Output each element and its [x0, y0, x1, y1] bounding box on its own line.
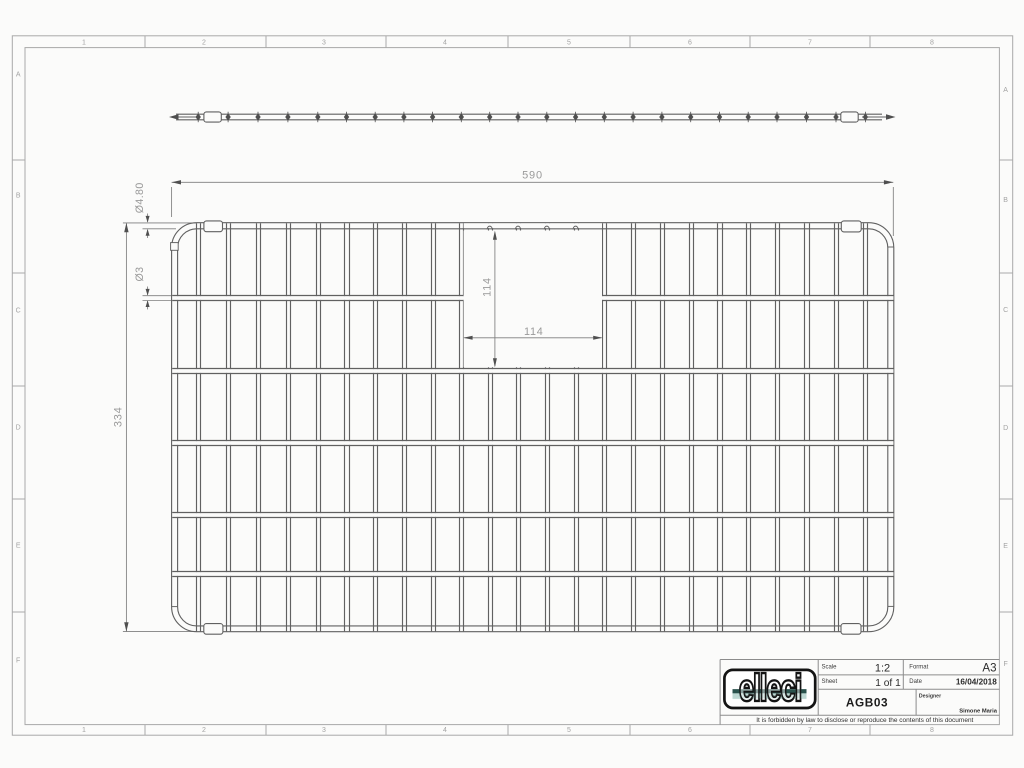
svg-text:114: 114	[481, 277, 493, 297]
svg-text:4: 4	[443, 40, 447, 47]
svg-text:A: A	[16, 72, 21, 79]
svg-text:Sheet: Sheet	[822, 679, 838, 685]
svg-text:It is forbidden by law to disc: It is forbidden by law to disclose or re…	[756, 717, 973, 724]
svg-text:Ø4.80: Ø4.80	[134, 182, 146, 213]
svg-text:334: 334	[113, 406, 125, 427]
svg-text:8: 8	[930, 727, 934, 734]
svg-text:E: E	[16, 543, 21, 550]
svg-text:E: E	[1003, 543, 1008, 550]
svg-text:590: 590	[522, 169, 543, 181]
svg-text:1: 1	[82, 40, 86, 47]
svg-text:B: B	[16, 193, 21, 200]
svg-text:4: 4	[443, 727, 447, 734]
svg-text:16/04/2018: 16/04/2018	[956, 678, 997, 687]
svg-text:5: 5	[567, 727, 571, 734]
svg-text:7: 7	[808, 727, 812, 734]
svg-text:elleci: elleci	[739, 667, 801, 708]
svg-text:1:2: 1:2	[875, 663, 890, 675]
svg-text:1 of 1: 1 of 1	[875, 678, 901, 689]
svg-text:D: D	[1003, 425, 1008, 432]
svg-text:F: F	[16, 658, 20, 665]
svg-text:114: 114	[524, 326, 544, 338]
svg-text:C: C	[1003, 307, 1008, 314]
svg-text:AGB03: AGB03	[846, 696, 888, 710]
svg-text:B: B	[1003, 197, 1008, 204]
svg-text:7: 7	[808, 40, 812, 47]
svg-text:3: 3	[322, 727, 326, 734]
svg-text:6: 6	[688, 40, 692, 47]
svg-text:Ø3: Ø3	[134, 267, 146, 282]
svg-text:F: F	[1003, 661, 1007, 668]
svg-text:Designer: Designer	[919, 693, 941, 699]
svg-text:5: 5	[567, 40, 571, 47]
svg-text:A3: A3	[982, 663, 996, 675]
svg-text:Scale: Scale	[822, 664, 838, 670]
svg-text:1: 1	[82, 727, 86, 734]
svg-text:Date: Date	[909, 679, 922, 685]
svg-text:2: 2	[202, 727, 206, 734]
svg-text:8: 8	[930, 40, 934, 47]
svg-text:C: C	[16, 308, 21, 315]
svg-text:2: 2	[202, 40, 206, 47]
svg-text:D: D	[16, 425, 21, 432]
svg-text:3: 3	[322, 40, 326, 47]
svg-text:Simone Maria: Simone Maria	[959, 709, 997, 715]
svg-text:6: 6	[688, 727, 692, 734]
svg-text:Format: Format	[909, 664, 928, 670]
svg-text:A: A	[1003, 87, 1008, 94]
